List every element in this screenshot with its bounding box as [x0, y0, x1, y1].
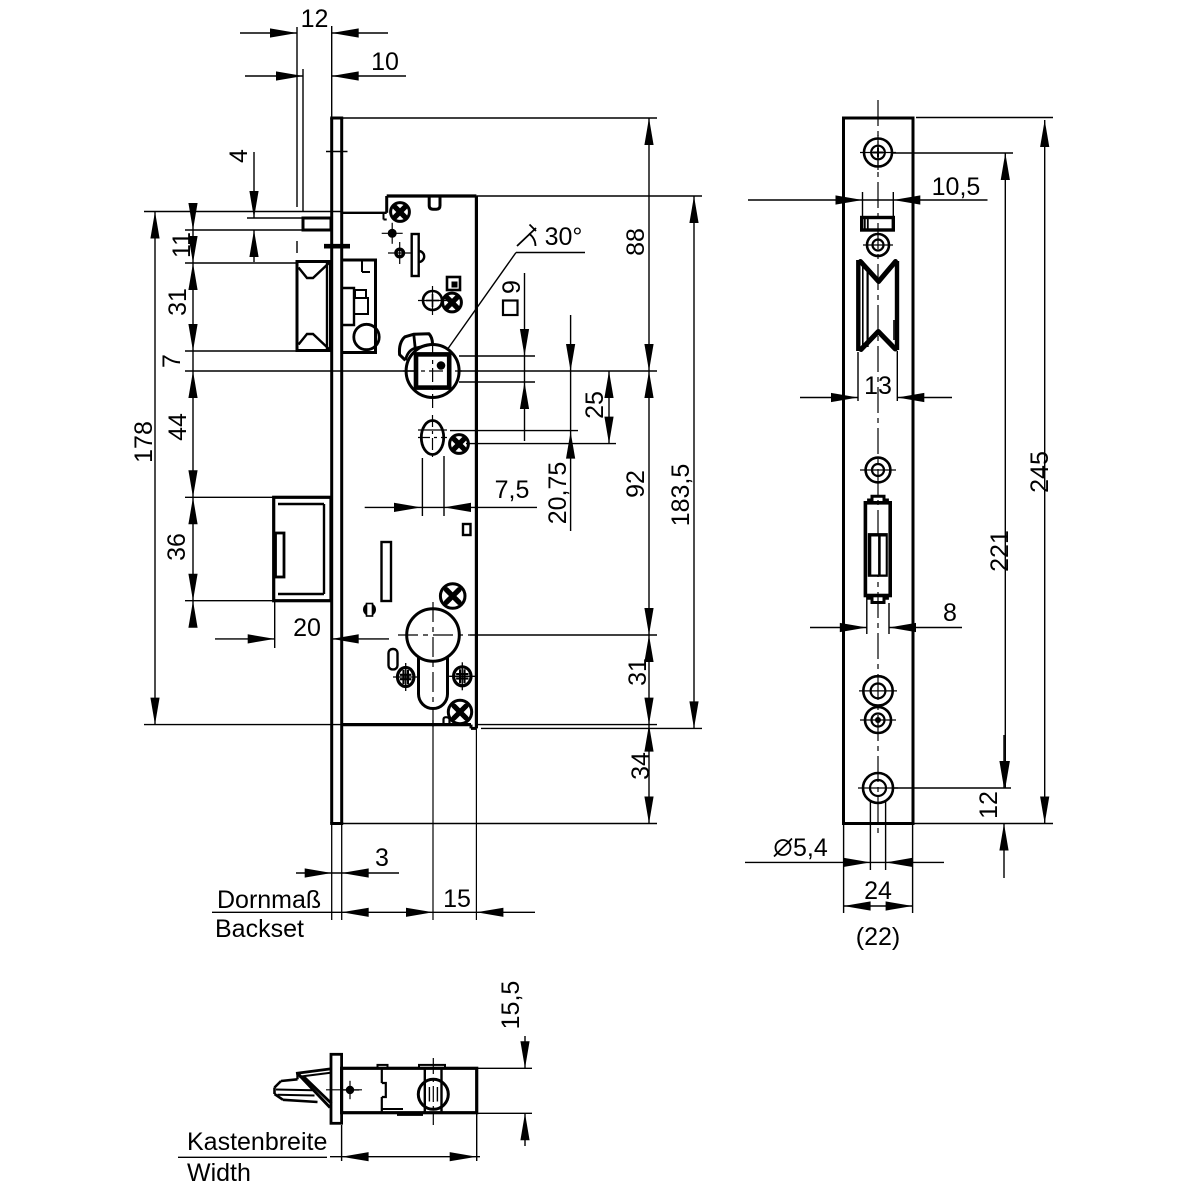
svg-text:20: 20 — [293, 614, 321, 642]
svg-text:44: 44 — [164, 413, 192, 441]
svg-text:88: 88 — [622, 228, 650, 256]
svg-text:30°: 30° — [545, 223, 583, 251]
svg-text:10: 10 — [371, 48, 399, 76]
svg-text:9: 9 — [498, 280, 526, 294]
svg-text:92: 92 — [622, 470, 650, 498]
svg-text:20,75: 20,75 — [544, 462, 572, 525]
svg-text:183,5: 183,5 — [667, 464, 695, 527]
svg-text:15: 15 — [443, 885, 471, 913]
svg-text:3: 3 — [375, 844, 389, 872]
svg-text:178: 178 — [130, 421, 158, 463]
svg-text:Width: Width — [187, 1159, 251, 1187]
svg-text:36: 36 — [163, 533, 191, 561]
svg-text:25: 25 — [581, 391, 609, 419]
svg-text:Dornmaß: Dornmaß — [217, 886, 321, 914]
svg-text:4: 4 — [225, 149, 253, 163]
svg-text:7,5: 7,5 — [495, 476, 530, 504]
svg-text:7: 7 — [158, 354, 186, 368]
svg-text:245: 245 — [1026, 451, 1054, 493]
svg-text:24: 24 — [864, 877, 892, 905]
svg-text:15,5: 15,5 — [497, 981, 525, 1030]
svg-text:5,4: 5,4 — [793, 834, 828, 862]
svg-text:12: 12 — [975, 791, 1003, 819]
svg-text:Backset: Backset — [215, 915, 304, 943]
svg-text:221: 221 — [986, 530, 1014, 572]
svg-text:31: 31 — [164, 288, 192, 316]
svg-text:13: 13 — [864, 372, 892, 400]
svg-text:12: 12 — [301, 5, 329, 33]
svg-text:8: 8 — [943, 599, 957, 627]
svg-text:31: 31 — [624, 658, 652, 686]
svg-text:11: 11 — [168, 232, 196, 258]
svg-text:10,5: 10,5 — [932, 173, 981, 201]
svg-text:34: 34 — [627, 752, 655, 780]
svg-text:(22): (22) — [856, 923, 900, 951]
svg-text:Kastenbreite: Kastenbreite — [187, 1128, 327, 1156]
